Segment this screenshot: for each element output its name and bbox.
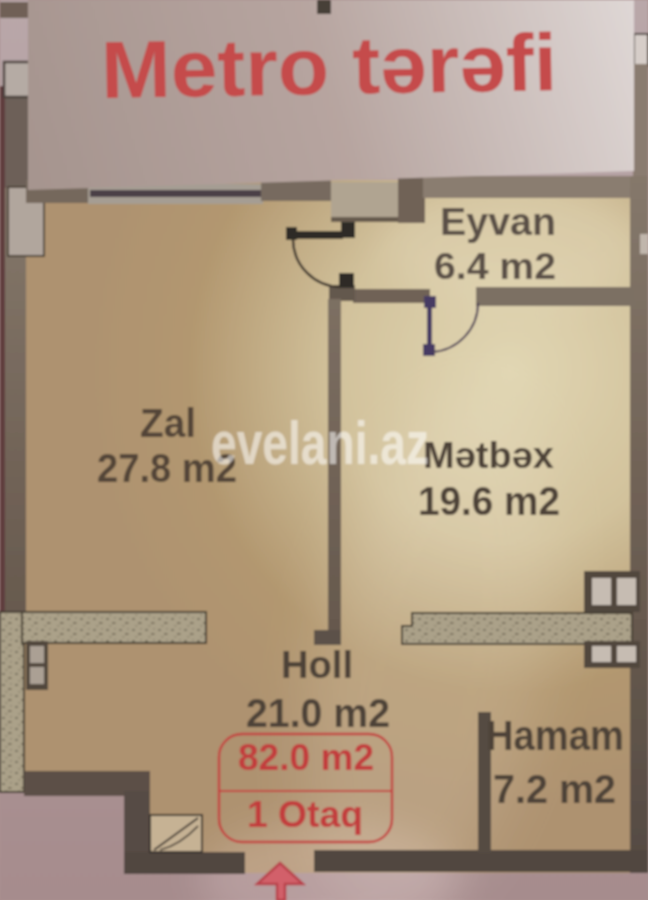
svg-text:Zal: Zal bbox=[140, 401, 196, 445]
svg-text:Eyvan: Eyvan bbox=[440, 201, 556, 243]
svg-text:evelani.az: evelani.az bbox=[211, 409, 429, 477]
svg-text:Holl: Holl bbox=[281, 643, 353, 686]
svg-text:Mətbəx: Mətbəx bbox=[423, 435, 554, 476]
svg-text:6.4 m2: 6.4 m2 bbox=[434, 246, 556, 287]
svg-text:Hamam: Hamam bbox=[486, 712, 624, 759]
svg-text:7.2 m2: 7.2 m2 bbox=[493, 767, 616, 811]
svg-text:19.6 m2: 19.6 m2 bbox=[418, 479, 560, 523]
svg-text:21.0 m2: 21.0 m2 bbox=[246, 691, 390, 735]
svg-text:1 Otaq: 1 Otaq bbox=[247, 794, 363, 835]
svg-text:Metro tərəfi: Metro tərəfi bbox=[100, 17, 558, 115]
svg-text:82.0 m2: 82.0 m2 bbox=[238, 737, 374, 778]
